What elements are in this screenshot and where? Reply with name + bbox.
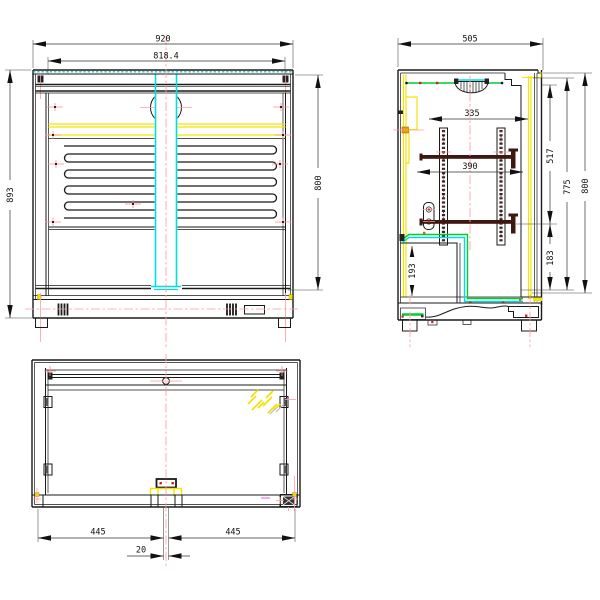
shelf-rail [440,128,448,245]
vent-louvers-left [59,304,68,316]
shelf-rails [436,128,509,245]
cad-drawing: 920 818.4 893 800 [0,0,600,600]
shelf-rail [497,128,505,245]
side-view: 505 335 390 517 183 775 800 193 [393,35,592,348]
side-clips [44,397,296,476]
dim-body-height-side: 800 [581,178,591,193]
dim-compartment-height: 193 [408,263,418,278]
dim-inner-width: 818.4 [153,52,179,62]
dim-body-height-front: 800 [314,175,324,190]
base-plinth [25,293,300,342]
junction-box [509,307,539,318]
electrical-box [276,495,297,512]
door-seal-mark [533,298,542,302]
dim-overall-height: 893 [6,187,16,202]
fan-assembly [454,79,489,94]
bottom-view: 445 445 20 [32,354,300,568]
power-cable [426,306,509,317]
dim-right-half: 445 [225,528,240,538]
dim-shelf-span: 335 [464,109,479,119]
bottom-dimensions: 445 445 20 [38,507,295,560]
dim-left-half: 445 [90,528,105,538]
vent-louvers-right [227,304,236,316]
side-feet [403,320,537,331]
rail-bracket [423,203,435,230]
front-feet [36,318,291,328]
rating-plate [245,306,265,315]
dim-depth: 505 [462,35,477,45]
dim-center-gap: 20 [136,546,146,556]
dim-interior-height: 775 [563,179,573,194]
side-dimensions: 505 335 390 517 183 775 800 193 [398,35,592,297]
drawing-canvas: 920 818.4 893 800 [0,0,600,600]
side-base [398,303,542,325]
door-section [521,72,542,302]
dim-overall-width: 920 [155,35,170,45]
corner-mark [289,295,293,300]
compressor-compartment [401,243,522,303]
dim-top-to-shelf: 517 [546,148,556,163]
front-view: 920 818.4 893 800 [5,35,325,349]
dim-shelf-depth: 390 [462,162,477,172]
dim-shelf-to-floor: 183 [546,250,556,265]
